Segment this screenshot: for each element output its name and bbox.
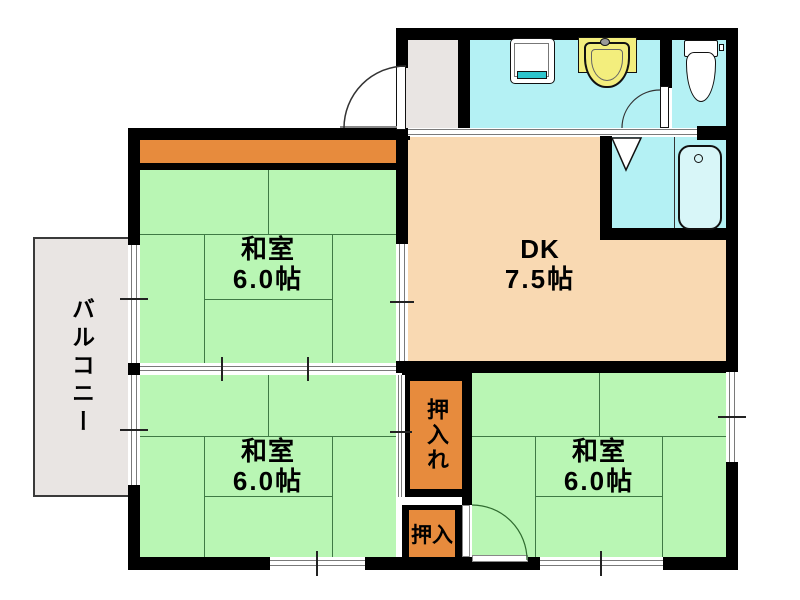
wall bbox=[128, 557, 270, 570]
wall bbox=[726, 462, 738, 570]
wall bbox=[396, 28, 408, 68]
entrance-floor bbox=[406, 40, 458, 128]
wall bbox=[726, 28, 738, 372]
wall bbox=[462, 373, 472, 505]
window-tick bbox=[390, 431, 412, 433]
wall bbox=[128, 363, 140, 375]
room-nw-name: 和室 bbox=[140, 234, 396, 264]
room-sw-area: 6.0帖 bbox=[140, 466, 396, 496]
wall bbox=[140, 163, 396, 170]
window-tick bbox=[316, 551, 318, 576]
wall bbox=[128, 128, 140, 245]
wall bbox=[396, 128, 408, 244]
partition-line bbox=[408, 134, 697, 135]
window-tick bbox=[600, 551, 602, 576]
bathtub-drain bbox=[694, 154, 703, 163]
wall bbox=[128, 128, 410, 140]
sliding-partition bbox=[140, 363, 396, 375]
window bbox=[128, 245, 140, 363]
balcony-floor: バルコニー bbox=[33, 237, 130, 497]
dk-area: 7.5帖 bbox=[430, 264, 650, 294]
door-opening bbox=[462, 505, 470, 557]
room-nw-area: 6.0帖 bbox=[140, 264, 396, 294]
tatami-line bbox=[268, 375, 269, 436]
window-tick bbox=[120, 429, 148, 431]
closet-small-label: 押入 bbox=[411, 519, 453, 549]
wall bbox=[398, 28, 738, 40]
floor-plan: バルコニー 押入れ 押入 bbox=[0, 0, 800, 600]
washing-machine-icon bbox=[510, 38, 555, 84]
closet-large-floor: 押入れ bbox=[410, 381, 462, 489]
tatami-line bbox=[599, 373, 600, 436]
tatami-line bbox=[535, 496, 662, 497]
wall bbox=[697, 126, 738, 140]
window-glass-line bbox=[136, 245, 137, 363]
tatami-line bbox=[204, 496, 332, 497]
tatami-line bbox=[268, 170, 269, 234]
balcony-label: バルコニー bbox=[35, 239, 128, 495]
closet-gap bbox=[396, 497, 462, 505]
sliding-door-line bbox=[401, 375, 402, 497]
wall bbox=[458, 28, 470, 130]
closet-large-label: 押入れ bbox=[410, 381, 462, 489]
toilet-door-leaf bbox=[660, 86, 669, 128]
sliding-door-line bbox=[398, 375, 399, 497]
room-se-name: 和室 bbox=[472, 436, 726, 466]
sliding-partition-line bbox=[140, 370, 396, 371]
dk-name: DK bbox=[430, 234, 650, 264]
room-se-label: 和室 6.0帖 bbox=[472, 436, 726, 496]
faucet-icon bbox=[600, 38, 610, 46]
tatami-line bbox=[204, 299, 332, 300]
sliding-partition-line bbox=[140, 366, 396, 367]
room-se-area: 6.0帖 bbox=[472, 466, 726, 496]
bathroom-divider-line bbox=[674, 137, 675, 228]
nw-closet-strip bbox=[140, 140, 396, 163]
window-glass-line bbox=[131, 245, 132, 363]
entry-door-leaf bbox=[396, 66, 406, 130]
wall bbox=[663, 557, 738, 570]
partition-line bbox=[408, 129, 697, 130]
wall bbox=[600, 133, 612, 240]
washing-machine-accent bbox=[517, 71, 547, 79]
window-tick bbox=[718, 416, 746, 418]
dk-label: DK 7.5帖 bbox=[430, 234, 650, 294]
entry-step-line bbox=[340, 126, 397, 128]
closet-small-floor: 押入 bbox=[409, 510, 455, 557]
window-tick bbox=[307, 357, 309, 381]
room-nw-label: 和室 6.0帖 bbox=[140, 234, 396, 294]
toilet-flush-knob bbox=[719, 44, 724, 51]
window-tick bbox=[221, 357, 223, 381]
wall bbox=[396, 361, 730, 373]
bathtub-icon bbox=[678, 145, 722, 230]
wall bbox=[660, 28, 672, 88]
window-tick bbox=[120, 298, 148, 300]
door-leaf-open bbox=[472, 555, 528, 562]
vanity-bowl-inner bbox=[591, 49, 623, 81]
room-sw-name: 和室 bbox=[140, 436, 396, 466]
window-tick bbox=[390, 301, 414, 303]
room-sw-label: 和室 6.0帖 bbox=[140, 436, 396, 496]
